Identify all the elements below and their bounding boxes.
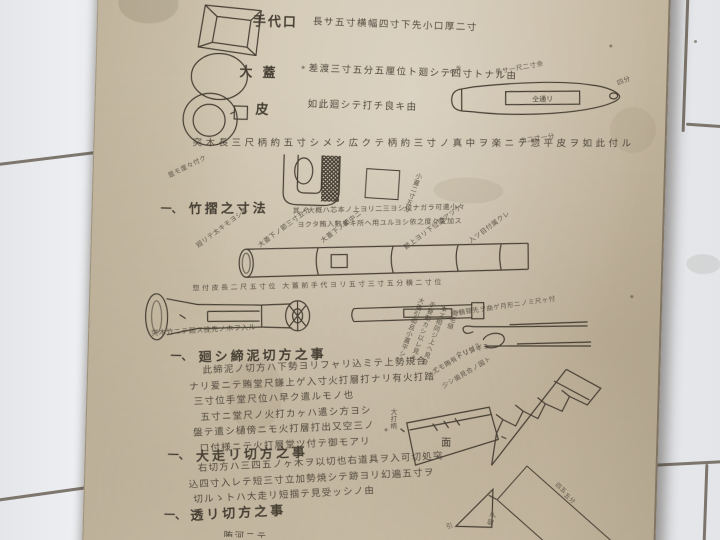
fork-note: 是モ度々付ク — [166, 152, 208, 180]
mallet-fork-diagram — [271, 150, 351, 212]
floor-plank-seam — [650, 460, 720, 467]
paper-stain — [118, 0, 179, 24]
flute-tube-diagram — [141, 288, 339, 347]
plane-tool-diagram: 仝通リ — [443, 72, 631, 135]
entry-desc: 如此廻シテ打チ良キ由 — [307, 96, 417, 113]
manuscript-paper: 手代口 長サ五寸横幅四寸下先小口厚二寸 大蓋 差渡三寸五分五厘位ト廻シテ四寸トナ… — [81, 0, 672, 540]
paper-stain — [433, 177, 504, 205]
entry-desc: 長サ五寸横幅四寸下先小口厚二寸 — [313, 13, 478, 33]
floor-speck — [694, 40, 697, 43]
paper-speck — [302, 66, 305, 69]
section-marker: 一、 — [168, 446, 190, 463]
small-lid-square-diagram — [364, 168, 400, 200]
floor-plank-seam — [686, 123, 720, 129]
floor-plank-seam — [0, 485, 96, 502]
entry-label: 手代口 — [253, 10, 299, 30]
entry-label: 皮 — [255, 99, 271, 118]
paper-speck — [609, 44, 612, 47]
board-diagram — [496, 465, 613, 540]
floor-plank-seam — [682, 0, 690, 132]
paper-speck — [630, 295, 633, 298]
mallet-instruction: 突木長三尺柄約五寸シメシ広クテ柄約三寸ノ真中ヲ楽ニテ惣平皮ヲ如此付ル — [193, 135, 635, 150]
triangle-gauge-diagram — [450, 484, 509, 538]
wedge-side-label: 大打柄 — [386, 408, 397, 448]
section-marker: 一、 — [164, 506, 186, 523]
wedge-face-label: 面 — [441, 438, 451, 449]
section-marker: 一、 — [160, 200, 182, 217]
staircase-diagram — [481, 357, 610, 475]
entry-label: 大蓋 — [239, 61, 286, 81]
section-marker: 一、 — [170, 347, 192, 364]
floor-plank-seam — [703, 464, 709, 540]
cutoff-line: 賄河ニテ — [223, 528, 267, 538]
manuscript-content: 手代口 長サ五寸横幅四寸下先小口厚二寸 大蓋 差渡三寸五分五厘位ト廻シテ四寸トナ… — [82, 0, 670, 540]
plane-inner-label: 仝通リ — [532, 94, 553, 103]
paper-stain — [686, 254, 720, 275]
